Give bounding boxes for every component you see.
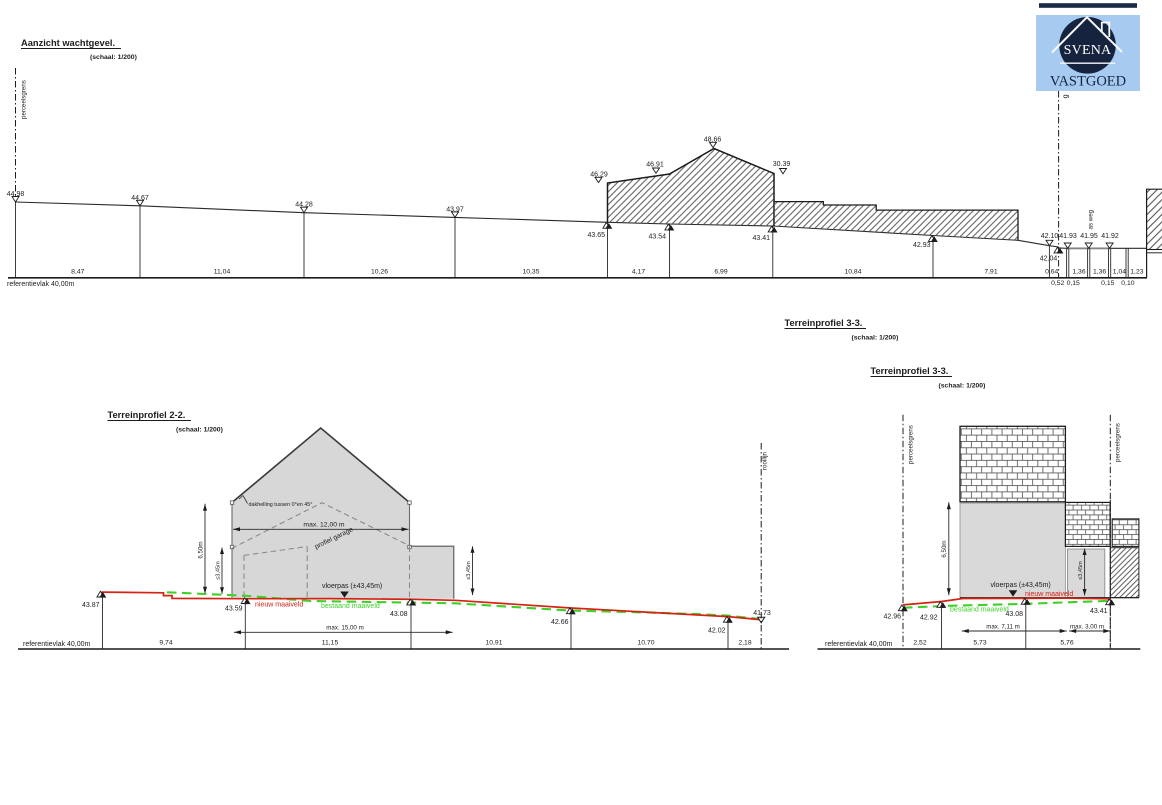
svg-text:7,91: 7,91 [984, 269, 997, 276]
svg-text:referentievlak 40,00m: referentievlak 40,00m [825, 641, 892, 648]
svg-text:43.41: 43.41 [1090, 608, 1108, 615]
svg-text:42.66: 42.66 [551, 619, 569, 626]
svg-text:6,50m: 6,50m [198, 541, 205, 558]
svg-text:1,04: 1,04 [1113, 269, 1126, 276]
svg-text:43.59: 43.59 [225, 606, 243, 613]
svg-text:perceelsgrens: perceelsgrens [1115, 423, 1122, 462]
svg-text:(schaal: 1/200): (schaal: 1/200) [939, 383, 986, 390]
svg-text:referentievlak 40,00m: referentievlak 40,00m [7, 281, 74, 288]
svg-text:g: g [1061, 94, 1070, 98]
svg-text:41.93: 41.93 [1059, 233, 1077, 240]
svg-text:Terreinprofiel 3-3.: Terreinprofiel 3-3. [785, 318, 863, 328]
svg-text:≤3,45m: ≤3,45m [216, 561, 222, 580]
svg-text:vloerpas (±43,45m): vloerpas (±43,45m) [991, 582, 1051, 589]
svg-text:max. 7,11 m: max. 7,11 m [986, 623, 1020, 630]
svg-text:(schaal: 1/200): (schaal: 1/200) [852, 335, 899, 342]
svg-text:41.95: 41.95 [1080, 233, 1098, 240]
svg-text:max. 15,00 m: max. 15,00 m [326, 625, 364, 632]
svg-text:42.93: 42.93 [913, 242, 931, 249]
svg-text:4,17: 4,17 [632, 269, 645, 276]
svg-text:43.41: 43.41 [752, 235, 770, 242]
svg-text:6,50m: 6,50m [941, 540, 948, 557]
svg-text:Aanzicht wachtgevel.: Aanzicht wachtgevel. [21, 38, 115, 48]
svg-text:10,26: 10,26 [371, 269, 388, 276]
svg-text:0,15: 0,15 [1067, 280, 1080, 287]
svg-text:(schaal: 1/200): (schaal: 1/200) [90, 54, 137, 61]
svg-text:2,52: 2,52 [913, 640, 926, 647]
svg-text:10,35: 10,35 [522, 269, 539, 276]
svg-text:perceelsgrens: perceelsgrens [908, 425, 915, 464]
svg-text:5,73: 5,73 [973, 640, 986, 647]
svg-text:bestaand maaiveld: bestaand maaiveld [321, 603, 380, 610]
svg-text:11,04: 11,04 [214, 269, 231, 276]
svg-text:43.08: 43.08 [390, 611, 408, 618]
svg-text:bestaand maaiveld: bestaand maaiveld [950, 607, 1009, 614]
svg-text:6,99: 6,99 [714, 269, 727, 276]
svg-text:≤3,45m: ≤3,45m [466, 561, 472, 580]
svg-text:10,84: 10,84 [844, 269, 861, 276]
svg-text:5,76: 5,76 [1060, 640, 1073, 647]
svg-text:1,36: 1,36 [1072, 269, 1085, 276]
svg-text:42.96: 42.96 [883, 613, 901, 620]
svg-text:42.10: 42.10 [1041, 233, 1059, 240]
svg-text:1,36: 1,36 [1093, 269, 1106, 276]
svg-text:0,15: 0,15 [1101, 280, 1114, 287]
svg-text:43.54: 43.54 [648, 234, 666, 241]
svg-text:rooilijn: rooilijn [762, 452, 769, 470]
svg-text:perceelsgrens: perceelsgrens [21, 80, 28, 119]
svg-text:vloerpas (±43,45m): vloerpas (±43,45m) [322, 583, 382, 590]
svg-text:42.02: 42.02 [708, 628, 726, 635]
svg-text:43.87: 43.87 [82, 602, 100, 609]
svg-text:11,15: 11,15 [322, 640, 339, 647]
svg-text:Terreinprofiel 2-2.: Terreinprofiel 2-2. [108, 410, 186, 420]
svg-text:43.08: 43.08 [1005, 611, 1023, 618]
svg-text:as weg: as weg [1088, 209, 1095, 229]
svg-text:43.65: 43.65 [587, 232, 605, 239]
svg-text:0,10: 0,10 [1121, 280, 1134, 287]
svg-text:10,70: 10,70 [637, 640, 654, 647]
svg-text:9,74: 9,74 [159, 640, 172, 647]
svg-text:nieuw maaiveld: nieuw maaiveld [1025, 591, 1073, 598]
svg-text:dakhelling tussen 0°en 45°: dakhelling tussen 0°en 45° [249, 502, 313, 508]
svg-text:42.04: 42.04 [1040, 255, 1058, 262]
svg-text:Terreinprofiel 3-3.: Terreinprofiel 3-3. [871, 366, 949, 376]
svg-text:10,91: 10,91 [485, 640, 502, 647]
svg-text:nieuw maaiveld: nieuw maaiveld [255, 602, 303, 609]
svg-text:42.92: 42.92 [920, 615, 938, 622]
svg-text:0,64: 0,64 [1045, 269, 1058, 276]
svg-text:max. 3,00 m: max. 3,00 m [1070, 623, 1104, 630]
svg-text:max. 12,00 m: max. 12,00 m [303, 522, 345, 529]
svg-text:≤3,45m: ≤3,45m [1078, 561, 1084, 580]
svg-text:(schaal: 1/200): (schaal: 1/200) [176, 427, 223, 434]
svg-text:41.73: 41.73 [753, 610, 771, 617]
svg-text:41.92: 41.92 [1101, 233, 1119, 240]
svg-text:1,23: 1,23 [1130, 269, 1143, 276]
svg-text:8,47: 8,47 [71, 269, 84, 276]
svg-text:2,18: 2,18 [738, 640, 751, 647]
svg-text:30.39: 30.39 [773, 161, 791, 168]
svg-text:VASTGOED: VASTGOED [1050, 74, 1126, 90]
svg-text:SVENA: SVENA [1064, 43, 1112, 58]
svg-text:0,52: 0,52 [1051, 280, 1064, 287]
svg-text:referentievlak 40,00m: referentievlak 40,00m [23, 641, 90, 648]
